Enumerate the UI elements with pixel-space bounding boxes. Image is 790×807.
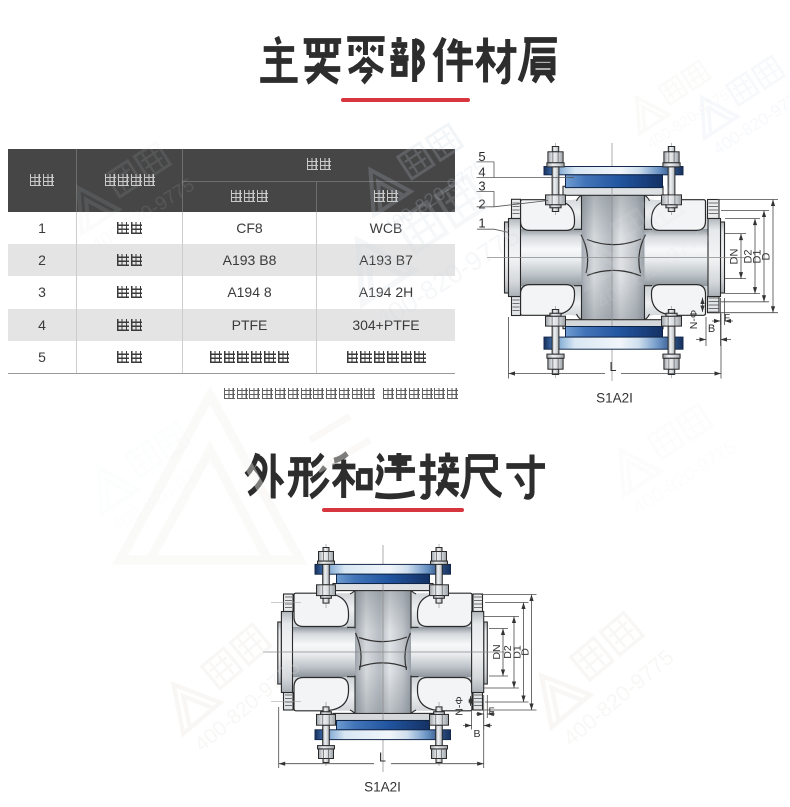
svg-text:F: F [724, 313, 730, 324]
svg-text:B: B [473, 728, 480, 740]
svg-text:N-Φ: N-Φ [688, 310, 700, 329]
svg-text:N-Φ: N-Φ [454, 696, 466, 715]
svg-text:2: 2 [478, 196, 485, 211]
svg-text:B: B [708, 323, 715, 335]
svg-text:DN: DN [729, 249, 741, 265]
svg-text:L: L [610, 360, 617, 374]
svg-text:1: 1 [478, 215, 485, 230]
svg-text:S1A2I: S1A2I [364, 780, 401, 795]
svg-text:D: D [761, 252, 773, 260]
svg-text:L: L [379, 751, 386, 765]
svg-text:F: F [488, 707, 494, 718]
svg-text:S1A2I: S1A2I [596, 391, 633, 406]
svg-text:D: D [520, 648, 532, 656]
